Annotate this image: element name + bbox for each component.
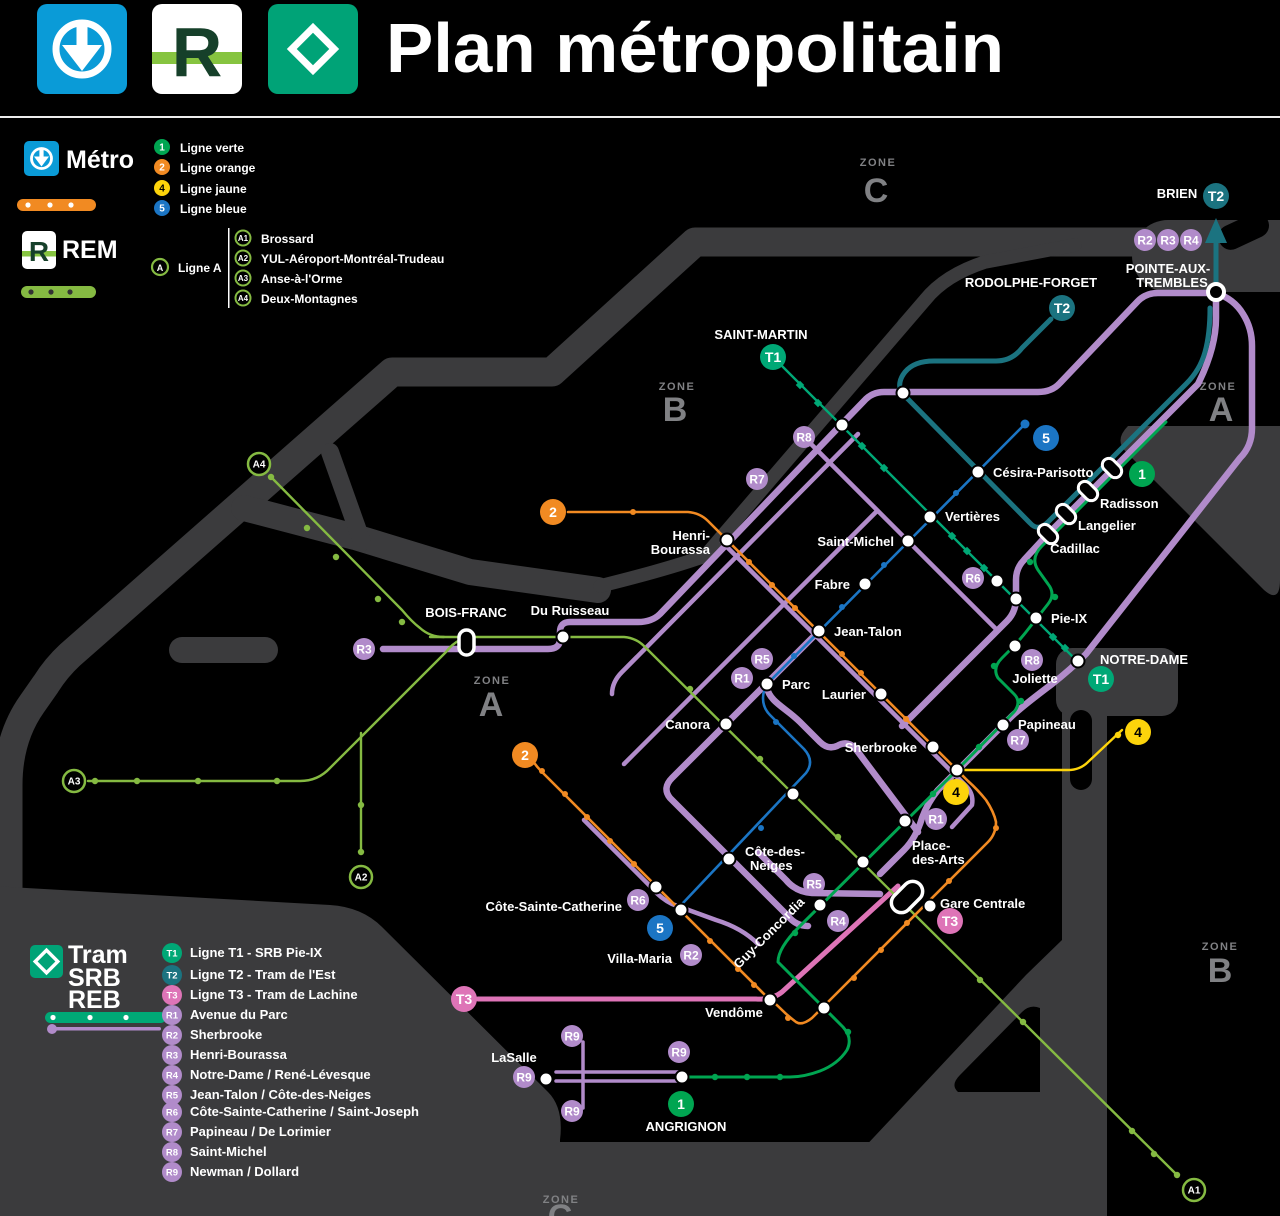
- svg-text:Place-: Place-: [912, 838, 950, 853]
- svg-text:Newman / Dollard: Newman / Dollard: [190, 1164, 299, 1179]
- svg-text:4: 4: [952, 784, 960, 800]
- svg-text:R5: R5: [754, 652, 770, 666]
- svg-text:2: 2: [159, 163, 165, 174]
- svg-text:B: B: [1208, 952, 1233, 990]
- svg-text:Ligne orange: Ligne orange: [180, 161, 256, 175]
- svg-text:R8: R8: [166, 1148, 178, 1159]
- svg-text:Henri-Bourassa: Henri-Bourassa: [190, 1047, 288, 1062]
- svg-text:des-Arts: des-Arts: [912, 852, 965, 867]
- svg-text:Côte-Sainte-Catherine: Côte-Sainte-Catherine: [485, 899, 622, 914]
- svg-text:Canora: Canora: [665, 717, 711, 732]
- svg-text:REM: REM: [62, 236, 118, 264]
- svg-text:5: 5: [159, 204, 165, 215]
- svg-text:RODOLPHE-FORGET: RODOLPHE-FORGET: [965, 275, 1097, 290]
- svg-text:Du Ruisseau: Du Ruisseau: [531, 603, 610, 618]
- svg-text:R1: R1: [928, 812, 944, 826]
- svg-text:Jean-Talon / Côte-des-Neiges: Jean-Talon / Côte-des-Neiges: [190, 1087, 371, 1102]
- svg-text:Ligne verte: Ligne verte: [180, 141, 244, 155]
- svg-text:Langelier: Langelier: [1078, 518, 1136, 533]
- svg-text:Plan métropolitain: Plan métropolitain: [386, 9, 1004, 87]
- svg-text:Brossard: Brossard: [261, 232, 314, 246]
- svg-text:BRIEN: BRIEN: [1157, 186, 1197, 201]
- svg-text:NOTRE-DAME: NOTRE-DAME: [1100, 652, 1188, 667]
- svg-text:Ligne T3 - Tram de Lachine: Ligne T3 - Tram de Lachine: [190, 987, 358, 1002]
- svg-text:Saint-Michel: Saint-Michel: [817, 534, 894, 549]
- svg-text:TREMBLES: TREMBLES: [1136, 275, 1208, 290]
- svg-text:Vertières: Vertières: [945, 509, 1000, 524]
- svg-text:Vendôme: Vendôme: [705, 1005, 763, 1020]
- svg-text:T1: T1: [166, 949, 178, 960]
- svg-text:Ligne T1 - SRB Pie-IX: Ligne T1 - SRB Pie-IX: [190, 945, 323, 960]
- svg-text:2: 2: [521, 747, 529, 763]
- svg-text:ZONE: ZONE: [860, 157, 897, 169]
- svg-text:A1: A1: [238, 234, 249, 243]
- svg-text:Ligne T2 - Tram de l'Est: Ligne T2 - Tram de l'Est: [190, 967, 336, 982]
- svg-text:Henri-: Henri-: [672, 528, 710, 543]
- svg-text:A: A: [479, 686, 504, 724]
- svg-text:A3: A3: [68, 777, 81, 788]
- svg-text:Césira-Parisotto: Césira-Parisotto: [993, 465, 1093, 480]
- svg-text:T3: T3: [942, 913, 959, 929]
- svg-text:R9: R9: [564, 1104, 580, 1118]
- svg-text:Jean-Talon: Jean-Talon: [834, 624, 902, 639]
- svg-text:R8: R8: [796, 430, 812, 444]
- svg-text:C: C: [548, 1198, 573, 1216]
- svg-text:Villa-Maria: Villa-Maria: [607, 951, 673, 966]
- svg-text:A4: A4: [238, 294, 249, 303]
- svg-text:R9: R9: [564, 1029, 580, 1043]
- svg-text:T3: T3: [456, 991, 473, 1007]
- svg-text:R6: R6: [965, 571, 981, 585]
- svg-text:R3: R3: [1160, 233, 1176, 247]
- svg-text:R5: R5: [166, 1091, 179, 1102]
- svg-text:A: A: [157, 263, 164, 273]
- svg-text:4: 4: [1134, 724, 1142, 740]
- svg-text:R7: R7: [1010, 733, 1026, 747]
- svg-text:Avenue du Parc: Avenue du Parc: [190, 1007, 288, 1022]
- svg-text:R8: R8: [1024, 653, 1040, 667]
- svg-text:A: A: [1209, 391, 1234, 429]
- svg-text:YUL-Aéroport-Montréal-Trudeau: YUL-Aéroport-Montréal-Trudeau: [261, 252, 444, 266]
- svg-text:Papineau: Papineau: [1018, 717, 1076, 732]
- svg-text:Cadillac: Cadillac: [1050, 541, 1100, 556]
- svg-text:R3: R3: [166, 1051, 178, 1062]
- svg-text:R7: R7: [749, 472, 765, 486]
- svg-text:SAINT-MARTIN: SAINT-MARTIN: [714, 327, 807, 342]
- svg-text:2: 2: [549, 504, 557, 520]
- svg-text:T1: T1: [765, 349, 782, 365]
- svg-text:LaSalle: LaSalle: [491, 1050, 537, 1065]
- svg-text:POINTE-AUX-: POINTE-AUX-: [1126, 261, 1211, 276]
- svg-text:R4: R4: [166, 1071, 179, 1082]
- svg-text:Notre-Dame / René-Lévesque: Notre-Dame / René-Lévesque: [190, 1067, 371, 1082]
- svg-text:R4: R4: [1183, 233, 1199, 247]
- svg-text:1: 1: [677, 1096, 685, 1112]
- svg-text:1: 1: [1138, 466, 1146, 482]
- svg-text:B: B: [663, 391, 688, 429]
- svg-text:Papineau / De Lorimier: Papineau / De Lorimier: [190, 1124, 331, 1139]
- svg-text:5: 5: [1042, 430, 1050, 446]
- svg-text:T3: T3: [166, 991, 177, 1002]
- svg-text:Pie-IX: Pie-IX: [1051, 611, 1087, 626]
- svg-text:R9: R9: [166, 1168, 178, 1179]
- svg-text:A1: A1: [1188, 1186, 1201, 1197]
- svg-text:T1: T1: [1093, 671, 1110, 687]
- svg-text:R5: R5: [806, 877, 822, 891]
- svg-text:R1: R1: [734, 671, 750, 685]
- svg-text:R9: R9: [516, 1070, 532, 1084]
- svg-text:R6: R6: [166, 1108, 178, 1119]
- svg-text:Deux-Montagnes: Deux-Montagnes: [261, 292, 358, 306]
- svg-text:ANGRIGNON: ANGRIGNON: [646, 1119, 727, 1134]
- svg-text:Ligne A: Ligne A: [178, 261, 222, 275]
- svg-text:Côte-des-: Côte-des-: [745, 844, 805, 859]
- svg-text:Ligne bleue: Ligne bleue: [180, 202, 247, 216]
- svg-text:Ligne jaune: Ligne jaune: [180, 182, 247, 196]
- svg-text:A2: A2: [238, 254, 249, 263]
- svg-text:Neiges: Neiges: [750, 858, 793, 873]
- svg-text:Joliette: Joliette: [1012, 671, 1058, 686]
- svg-text:R7: R7: [166, 1128, 178, 1139]
- svg-text:Fabre: Fabre: [815, 577, 850, 592]
- svg-text:Métro: Métro: [66, 146, 134, 174]
- svg-text:Laurier: Laurier: [822, 687, 866, 702]
- svg-text:R2: R2: [683, 948, 699, 962]
- svg-text:R3: R3: [356, 642, 372, 656]
- svg-text:Saint-Michel: Saint-Michel: [190, 1144, 267, 1159]
- svg-text:T2: T2: [1208, 188, 1225, 204]
- svg-text:A2: A2: [355, 873, 368, 884]
- svg-text:R2: R2: [166, 1031, 178, 1042]
- svg-text:1: 1: [159, 143, 165, 154]
- svg-text:REB: REB: [68, 986, 121, 1014]
- svg-text:T2: T2: [1054, 300, 1071, 316]
- svg-text:Radisson: Radisson: [1100, 496, 1159, 511]
- svg-text:Parc: Parc: [782, 677, 810, 692]
- svg-text:R4: R4: [830, 914, 846, 928]
- svg-text:5: 5: [656, 920, 664, 936]
- svg-text:Anse-à-l'Orme: Anse-à-l'Orme: [261, 272, 343, 286]
- svg-text:R6: R6: [630, 893, 646, 907]
- svg-text:R2: R2: [1137, 233, 1153, 247]
- svg-text:C: C: [864, 172, 889, 210]
- svg-text:BOIS-FRANC: BOIS-FRANC: [425, 605, 507, 620]
- svg-text:R: R: [29, 236, 49, 267]
- svg-text:R: R: [172, 13, 223, 91]
- svg-text:Côte-Sainte-Catherine / Saint-: Côte-Sainte-Catherine / Saint-Joseph: [190, 1104, 419, 1119]
- svg-text:R9: R9: [671, 1045, 687, 1059]
- svg-text:A4: A4: [253, 460, 266, 471]
- svg-text:Sherbrooke: Sherbrooke: [845, 740, 917, 755]
- svg-text:Bourassa: Bourassa: [651, 542, 711, 557]
- svg-text:Sherbrooke: Sherbrooke: [190, 1027, 262, 1042]
- svg-text:R1: R1: [166, 1011, 179, 1022]
- svg-text:T2: T2: [166, 971, 177, 982]
- svg-text:A3: A3: [238, 274, 249, 283]
- svg-text:4: 4: [159, 184, 165, 195]
